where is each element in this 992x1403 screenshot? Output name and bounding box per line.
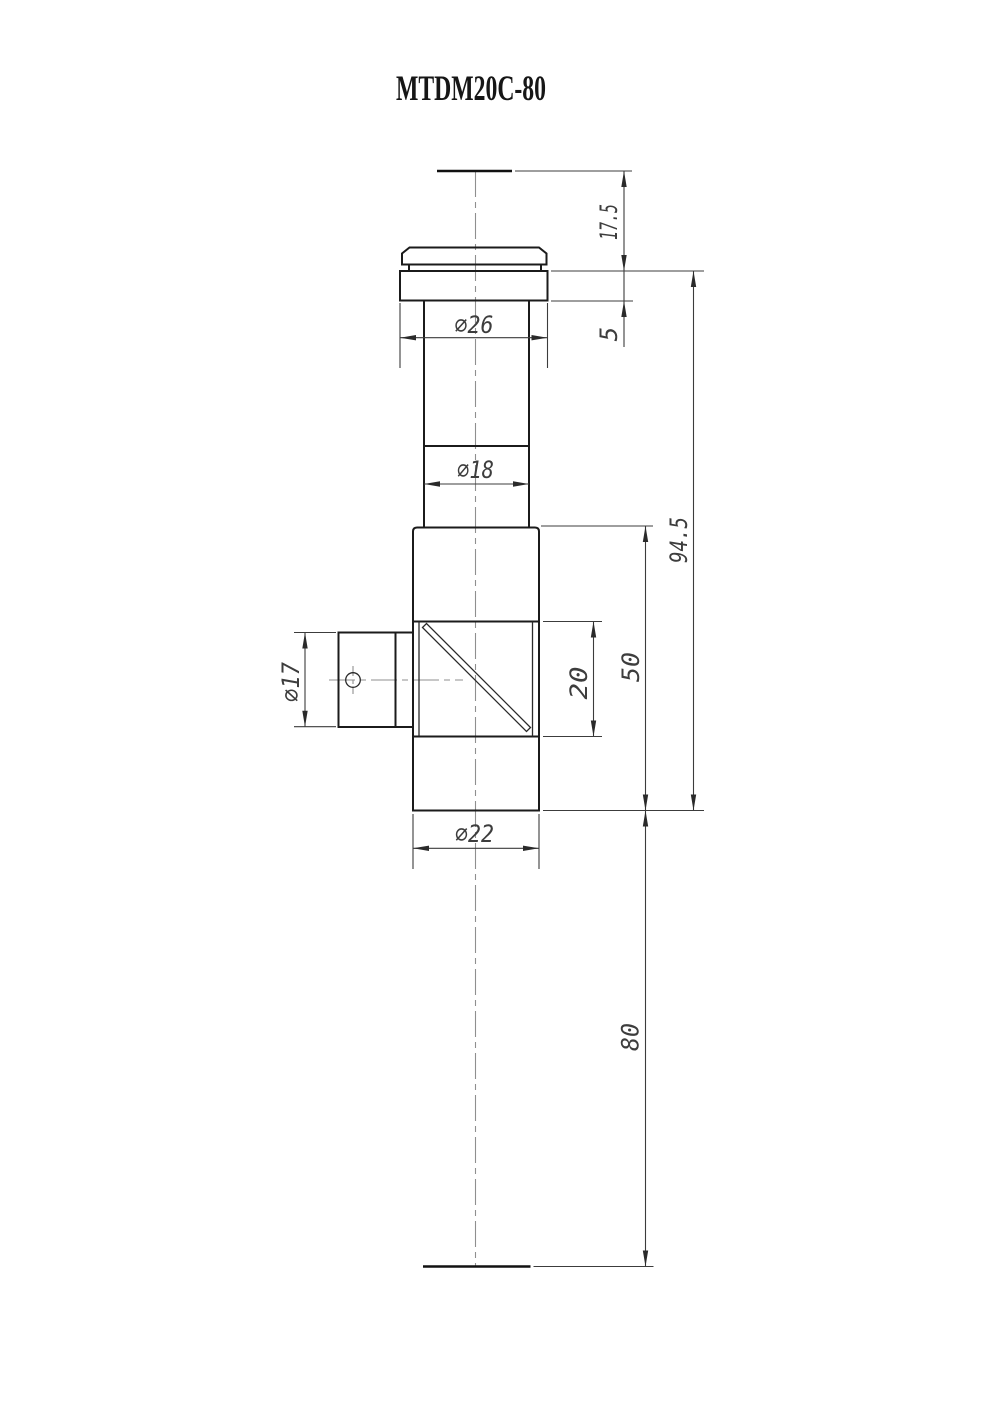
dim-label-5: 5 (595, 327, 623, 341)
drawing-title: MTDM20C-80 (396, 68, 546, 108)
dimension-flange-diameter: ∅26 (400, 311, 548, 340)
part-outline (339, 171, 548, 1267)
part-top-cap (402, 248, 547, 265)
arrow-down-80 (643, 1251, 648, 1267)
dimension-window-height: 20 (565, 622, 596, 737)
arrow-up-94-5 (691, 271, 696, 287)
extension-lines (294, 171, 704, 1267)
dim-label-50: 50 (617, 652, 645, 682)
dimension-body-height: 50 (617, 526, 648, 811)
beamsplitter-diagonal (423, 624, 531, 732)
arrow-up-5 (621, 301, 626, 317)
arrow-down-94-5 (691, 795, 696, 811)
part-flange (400, 271, 548, 301)
dimension-overall-height: 94.5 (665, 271, 696, 811)
arrow-down-50 (643, 795, 648, 811)
arrow-right-phi18 (513, 481, 529, 486)
arrow-up-phi17 (302, 633, 307, 649)
arrow-left-phi22 (413, 846, 429, 851)
arrow-down-20 (591, 721, 596, 737)
arrow-up-17-5 (621, 171, 626, 187)
dimension-body-diameter: ∅22 (413, 820, 539, 851)
engineering-drawing: 17.5 5 ∅26 ∅18 94.5 50 20 (0, 0, 992, 1403)
dimension-port-diameter: ∅17 (277, 633, 308, 727)
arrow-down-phi17 (302, 711, 307, 727)
arrow-down-17-5 (621, 255, 626, 271)
arrow-up-20 (591, 622, 596, 638)
arrow-right-phi26 (532, 335, 548, 340)
dim-label-94-5: 94.5 (665, 517, 693, 563)
dim-label-phi26: ∅26 (455, 311, 494, 339)
dimension-flange-thickness: 5 (595, 301, 627, 341)
arrow-up-80 (643, 811, 648, 827)
dimension-bottom-distance: 80 (617, 811, 649, 1267)
arrow-right-phi22 (523, 846, 539, 851)
dim-label-20: 20 (565, 667, 593, 700)
dim-label-phi17: ∅17 (277, 662, 305, 702)
dimension-tube-diameter: ∅18 (424, 456, 529, 487)
arrow-up-50 (643, 526, 648, 542)
arrow-left-phi26 (400, 335, 416, 340)
arrow-left-phi18 (424, 481, 440, 486)
drawing-sheet: 17.5 5 ∅26 ∅18 94.5 50 20 (0, 0, 992, 1403)
dim-label-phi18: ∅18 (457, 456, 494, 484)
dim-label-80: 80 (617, 1023, 645, 1051)
dim-label-phi22: ∅22 (455, 820, 494, 848)
dim-label-17-5: 17.5 (595, 204, 623, 240)
dimension-top-to-flange: 17.5 (595, 171, 627, 347)
